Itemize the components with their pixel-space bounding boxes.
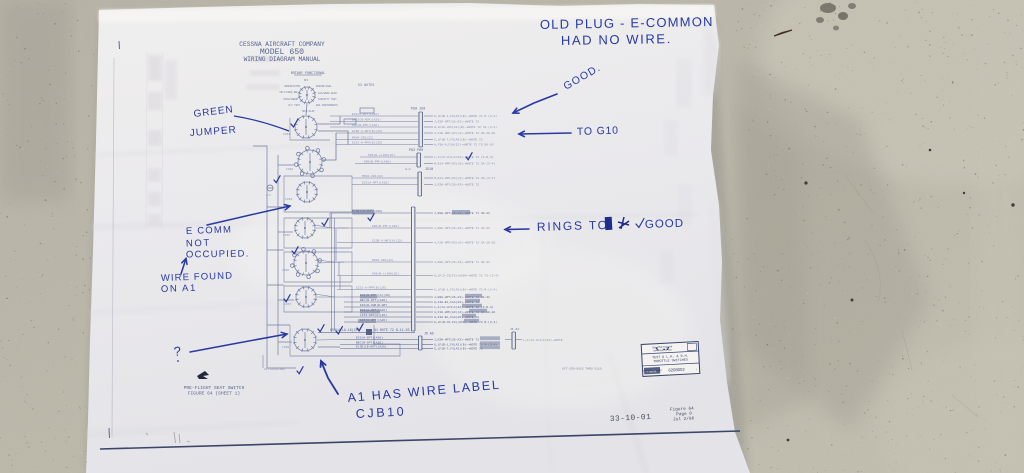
- svg-text:NOT: NOT: [186, 238, 211, 250]
- svg-text:J,E3H-HPT(26-A3)—◂NOTE 72: J,E3H-HPT(26-A3)—◂NOTE 72: [434, 183, 479, 187]
- svg-text:TEST/FLAP: TEST/FLAP: [302, 110, 315, 113]
- svg-text:BEC(B-GPT)(A26): BEC(B-GPT)(A26): [356, 341, 383, 345]
- svg-text:L4T3-DFP(A)(26): L4T3-DFP(A)(26): [360, 313, 387, 317]
- svg-text:WIRING DIAGRAM MANUAL: WIRING DIAGRAM MANUAL: [244, 56, 321, 63]
- svg-text:OFF: OFF: [304, 79, 309, 82]
- svg-text:E23D-A-WHT(B)(22): E23D-A-WHT(B)(22): [352, 129, 383, 133]
- svg-text:VOLT/FREQ REF: VOLT/FREQ REF: [279, 91, 298, 94]
- svg-text:E9D(B-PPF)(A26): E9D(B-PPF)(A26): [364, 160, 391, 164]
- svg-text:C361: C361: [283, 133, 290, 136]
- svg-text:C367: C367: [284, 303, 291, 306]
- svg-text:E9D(B-PPF)(A26): E9D(B-PPF)(A26): [372, 224, 399, 228]
- svg-text:M,E14-HPF(A3)(A)—◂NOTE 72 3A-(: M,E14-HPF(A3)(A)—◂NOTE 72 3A-(3-4): [434, 176, 495, 180]
- svg-text:A,F3H-A,F1A(22)—◂NOTE 72 TO 5A: A,F3H-A,F1A(22)—◂NOTE 72 TO 5A-10: [434, 143, 494, 147]
- svg-text:LDG/WARN GEAR: LDG/WARN GEAR: [318, 92, 337, 95]
- svg-text:E23(A-HPT)(A26): E23(A-HPT)(A26): [362, 181, 389, 185]
- svg-text:ENGINE/FUEL: ENGINE/FUEL: [316, 85, 332, 88]
- svg-text:53 NOTES: 53 NOTES: [358, 84, 374, 88]
- svg-text:MXN4-CR1(22): MXN4-CR1(22): [352, 136, 374, 140]
- svg-text:E23J-A-PPP(B)(26): E23J-A-PPP(B)(26): [356, 286, 387, 290]
- svg-text:L,F(14-LF3)4(32)—◂NOTE: L,F(14-LF3)4(32)—◂NOTE: [523, 338, 563, 342]
- svg-text:C362: C362: [286, 168, 293, 171]
- svg-text:5,LF1B-7,F3(A3)(B)—◂NOTE 72: 5,LF1B-7,F3(A3)(B)—◂NOTE 72: [434, 347, 483, 351]
- svg-text:J1 A1: J1 A1: [510, 328, 519, 331]
- svg-text:E23B-A-WHT(A)(22): E23B-A-WHT(A)(22): [372, 239, 403, 243]
- svg-text:S66(B-+LJW0(26): S66(B-+LJW0(26): [372, 272, 399, 276]
- svg-text:ANNUNCIATOR: ANNUNCIATOR: [284, 85, 300, 88]
- svg-text:S66(B-+LJW0(26): S66(B-+LJW0(26): [368, 153, 395, 157]
- svg-text:J6 A6: J6 A6: [424, 332, 434, 336]
- svg-text:A1 NOTE 72 N-11-05: A1 NOTE 72 N-11-05: [374, 328, 410, 332]
- svg-text:CAPACITY TEST: CAPACITY TEST: [318, 98, 337, 101]
- svg-text:MXN4-CR1(22): MXN4-CR1(22): [372, 258, 394, 262]
- svg-text:KD314-LA-16(20): KD314-LA-16(20): [330, 328, 360, 332]
- svg-text:6,LF1B-1,F6(A3)(B)—◂NOTE 72 M-: 6,LF1B-1,F6(A3)(B)—◂NOTE 72 M-(3-4): [434, 288, 497, 292]
- svg-text:H-H: H-H: [405, 168, 411, 171]
- svg-text:6,LF1B-1,F6(A3)(B)—◂NOTE 72 M-: 6,LF1B-1,F6(A3)(B)—◂NOTE 72 M-(3-4): [434, 114, 497, 118]
- svg-text:ENG INSTRUMENTS: ENG INSTRUMENTS: [316, 104, 338, 107]
- svg-text:MXN4-CR1(22): MXN4-CR1(22): [362, 174, 384, 178]
- svg-text:TO G10: TO G10: [577, 125, 619, 138]
- svg-text:BRC3(B-ADM)(A26): BRC3(B-ADM)(A26): [352, 118, 381, 122]
- svg-text:A/C: A/C: [266, 193, 271, 197]
- svg-text:M,E14-HPF(A3)(A)—◂NOTE 72 3A-(: M,E14-HPF(A3)(A)—◂NOTE 72 3A-(3-4): [434, 162, 495, 166]
- svg-text:E(3B)(B-HPT)(A26): E(3B)(B-HPT)(A26): [356, 345, 387, 349]
- svg-text:877-J59-0015 THRU 5110: 877-J59-0015 THRU 5110: [562, 368, 602, 371]
- svg-text:BEC(B-GPT)(A26): BEC(B-GPT)(A26): [360, 298, 387, 302]
- svg-text:P59 J59: P59 J59: [411, 108, 425, 112]
- svg-text:J,E9H-HPT(26-A3)—◂NOTE 71 30-4: J,E9H-HPT(26-A3)—◂NOTE 71 30-41: [434, 226, 490, 230]
- svg-text:?: ?: [173, 344, 181, 359]
- svg-text:HAD NO WIRE.: HAD NO WIRE.: [561, 31, 672, 48]
- svg-text:ROTARY FUNCTIONAL: ROTARY FUNCTIONAL: [291, 72, 326, 76]
- svg-text:6208002: 6208002: [668, 367, 685, 373]
- svg-text:↓: ↓: [696, 368, 698, 371]
- svg-text:EC5(A-GPT)(A26): EC5(A-GPT)(A26): [356, 336, 383, 340]
- svg-text:RINGS: RINGS: [537, 218, 584, 234]
- svg-text:GOOD: GOOD: [645, 218, 685, 231]
- svg-text:4,F1H-HPF(A3)(A)—◂NOTE 72 3A-1: 4,F1H-HPF(A3)(A)—◂NOTE 72 3A-10-02: [434, 131, 495, 135]
- svg-text:FIGURE 64 (SHEET 1): FIGURE 64 (SHEET 1): [188, 391, 240, 397]
- svg-text:E COMM: E COMM: [186, 224, 233, 237]
- svg-text:5,LF1B-7,F3(A3)(B)—◂NOTE 72: 5,LF1B-7,F3(A3)(B)—◂NOTE 72: [434, 138, 483, 142]
- svg-text:C365: C365: [283, 234, 290, 237]
- svg-text:J510: J510: [425, 168, 433, 172]
- svg-text:CESSNA AIRCRAFT COMPANY: CESSNA AIRCRAFT COMPANY: [239, 41, 325, 48]
- svg-text:DASH/ANNUN: DASH/ANNUN: [284, 98, 299, 101]
- svg-text:H,LF19-LPF(A3)(B)—◂NOTE 72 7A-: H,LF19-LPF(A3)(B)—◂NOTE 72 7A-(3-4): [434, 125, 497, 129]
- svg-text:ALT+ACH(FWD): ALT+ACH(FWD): [264, 367, 286, 371]
- svg-text:J,E9H-HPT(26-A3)—◂NOTE 71 30-4: J,E9H-HPT(26-A3)—◂NOTE 71 30-41: [434, 260, 490, 264]
- svg-text:CJB10: CJB10: [355, 404, 406, 421]
- svg-text:4,F1H-HPF(A3)(A)—◂NOTE 72 3A-1: 4,F1H-HPF(A3)(A)—◂NOTE 72 3A-10-02: [434, 241, 495, 245]
- svg-text:E23J-A-PPP(B)(26): E23J-A-PPP(B)(26): [352, 141, 383, 145]
- svg-text:J,E3H-HPT(26-A3)—◂NOTE 72: J,E3H-HPT(26-A3)—◂NOTE 72: [434, 338, 479, 342]
- svg-text:PRE-FLIGHT SEAT SWITCH: PRE-FLIGHT SEAT SWITCH: [184, 385, 245, 391]
- svg-text:C363: C363: [285, 198, 292, 201]
- svg-text:E23(A-HPT)(A26): E23(A-HPT)(A26): [352, 112, 379, 116]
- svg-text:ON A1: ON A1: [161, 283, 197, 295]
- svg-text:J,E3H-HPT(26-A3)—◂NOTE 72: J,E3H-HPT(26-A3)—◂NOTE 72: [434, 120, 479, 124]
- svg-text:C369: C369: [282, 346, 289, 349]
- svg-text:P62 P60: P62 P60: [409, 149, 423, 153]
- svg-text:L,F(14-LF3)4(32)—◂NOTE 72 (3-W: L,F(14-LF3)4(32)—◂NOTE 72 (3-W-4): [434, 155, 494, 159]
- svg-text:OLD PLUG - E-COMMON: OLD PLUG - E-COMMON: [540, 14, 714, 32]
- svg-text:OCCUPIED.: OCCUPIED.: [186, 248, 250, 260]
- svg-text:E60(B-CWR)R-GRY: E60(B-CWR)R-GRY: [360, 303, 387, 307]
- svg-text:A,LF(3-C3LF2)+A26H—◂NOTE 72 73: A,LF(3-C3LF2)+A26H—◂NOTE 72 73-(3-4): [434, 274, 499, 278]
- svg-text:N/C TEST: N/C TEST: [289, 104, 301, 107]
- svg-text:C366: C366: [282, 269, 289, 272]
